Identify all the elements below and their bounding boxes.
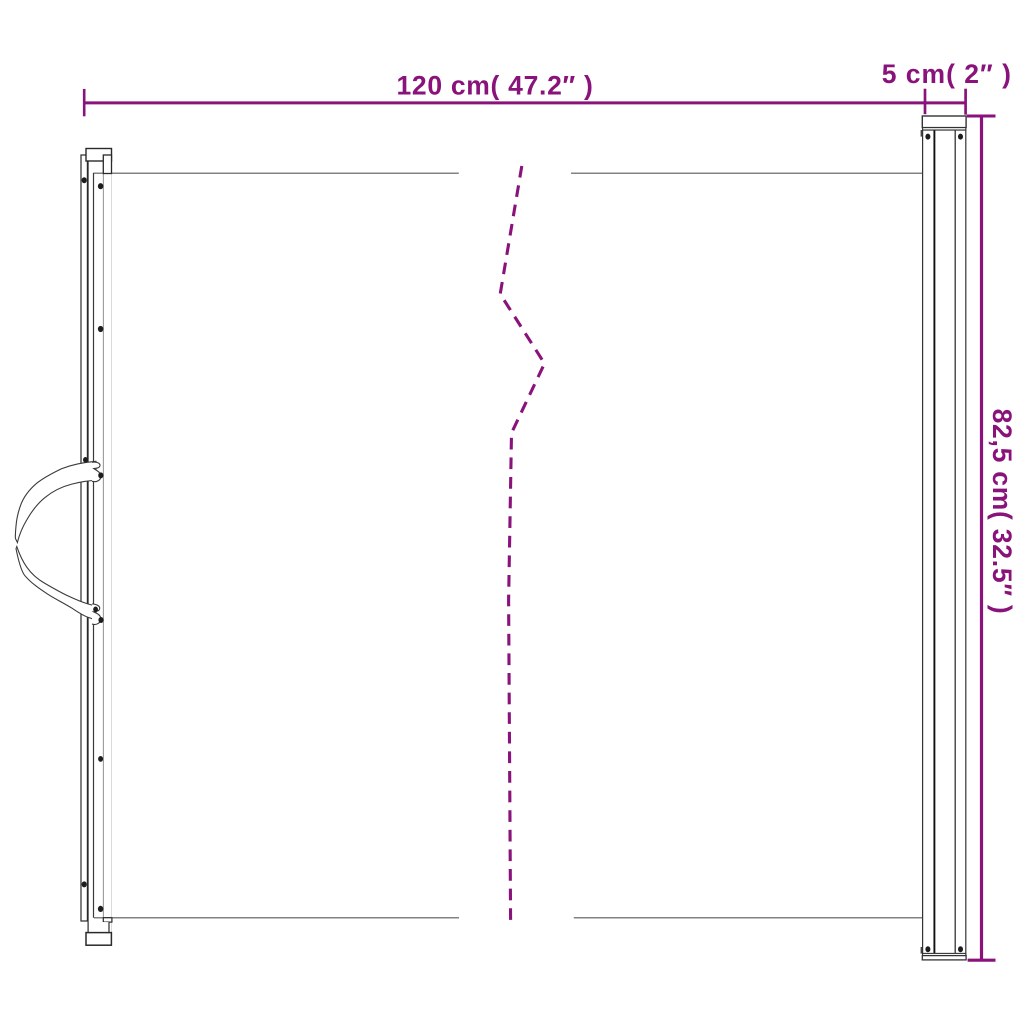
svg-text:120 cm( 47.2″ ): 120 cm( 47.2″ ) [396,70,593,100]
svg-text:82,5 cm( 32.5″ ): 82,5 cm( 32.5″ ) [987,409,1017,615]
svg-text:5 cm( 2″ ): 5 cm( 2″ ) [882,59,1012,89]
